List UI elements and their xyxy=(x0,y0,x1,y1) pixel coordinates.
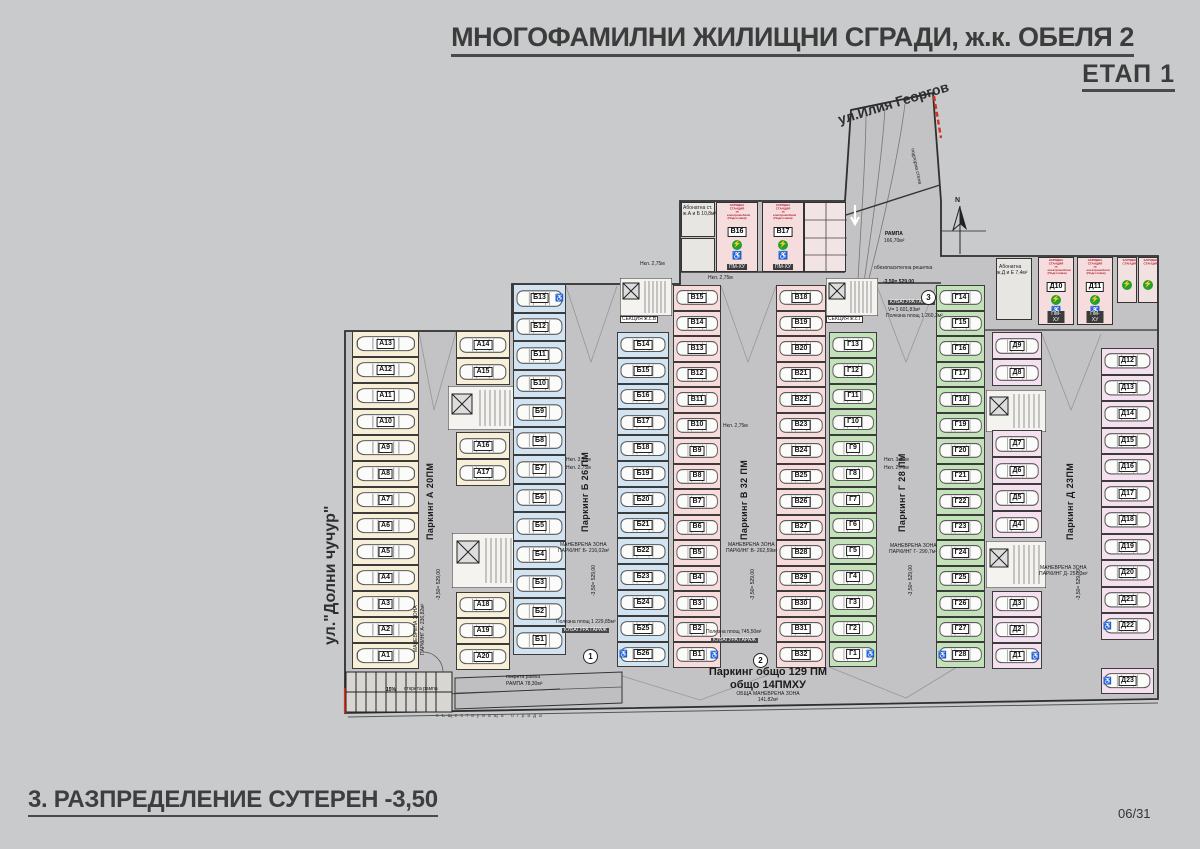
parking-stall-А10: А10 xyxy=(352,409,419,435)
plan-label: ж.А и Б 10,8м² xyxy=(683,212,716,217)
wheelchair-icon: ♿ xyxy=(1031,652,1040,660)
parking-stall-Г27: Г27 xyxy=(936,617,985,643)
section-number-bubble: 3 xyxy=(921,290,936,305)
stall-id: Д20 xyxy=(1118,568,1137,578)
stall-id: А15 xyxy=(474,367,493,377)
stall-id: В15 xyxy=(688,293,707,303)
parking-stall-Г24: Г24 xyxy=(936,540,985,566)
parking-stall-Б1: Б1 xyxy=(513,626,566,655)
drawing-title: 3. РАЗПРЕДЕЛЕНИЕ СУТЕРЕН -3,50 xyxy=(28,786,438,817)
parking-stall-Д9: Д9 xyxy=(992,332,1042,359)
stair-core xyxy=(986,390,1046,432)
parking-stall-Д15: Д15 xyxy=(1101,428,1154,455)
parking-stall-Д16: Д16 xyxy=(1101,454,1154,481)
plan-label: Нкл. 2,75м xyxy=(708,276,733,281)
accessible-space-tag: ПМ-ХУ xyxy=(773,264,793,270)
stair-core xyxy=(986,541,1046,588)
parking-stall-В4: В4 xyxy=(673,566,721,592)
stall-id: Г8 xyxy=(846,469,860,479)
sheet-number: 06/31 xyxy=(1118,806,1151,821)
stall-id: В10 xyxy=(688,420,707,430)
stall-id: В30 xyxy=(792,599,811,609)
plan-label: 15% xyxy=(386,688,396,693)
stall-id: В12 xyxy=(688,369,707,379)
total-accessible: общо 14ПМХУ xyxy=(688,679,848,692)
stall-id: В4 xyxy=(690,573,705,583)
charging-station-caption: ЗАРЯДНА СТАНЦИЯ xyxy=(1144,259,1153,266)
plan-label: открита рампа xyxy=(404,687,438,692)
stall-id: В28 xyxy=(792,548,811,558)
plan-label: ПАРКИНГ Г- 290,7м² xyxy=(889,550,937,555)
parking-stall-Г18: Г18 xyxy=(936,387,985,413)
stall-id: Б5 xyxy=(532,521,547,531)
stair-core xyxy=(620,278,672,316)
parking-stall-А18: А18 xyxy=(456,592,510,618)
stall-id: В29 xyxy=(792,573,811,583)
wheelchair-icon: ♿ xyxy=(866,650,875,658)
stall-id: Д19 xyxy=(1118,542,1137,552)
parking-stall-Д7: Д7 xyxy=(992,430,1042,457)
plan-label: СЕКЦИЯ ж.с.В xyxy=(620,316,658,323)
parking-stall-В9: В9 xyxy=(673,438,721,464)
parking-stall-В15: В15 xyxy=(673,285,721,311)
stall-id: Б17 xyxy=(634,417,653,427)
parking-stall-В19: В19 xyxy=(776,311,826,337)
accessible-space-tag: ПМ-ХУ xyxy=(1087,311,1104,323)
plan-label: -3,50= 529,00 xyxy=(909,565,914,596)
plan-label: съществуваща ограда xyxy=(436,714,545,719)
stall-id: В14 xyxy=(688,318,707,328)
parking-stall-Б12: Б12 xyxy=(513,313,566,342)
stall-id: Г6 xyxy=(846,520,860,530)
stall-id: Г15 xyxy=(952,318,970,328)
street-label-left: ул."Долни чучур" xyxy=(322,506,340,645)
parking-stall-Д8: Д8 xyxy=(992,359,1042,386)
charging-tech-room: ЗАРЯДНА СТАНЦИЯ⚡ xyxy=(1117,257,1137,303)
parking-stall-Г26: Г26 xyxy=(936,591,985,617)
stall-id: В24 xyxy=(792,446,811,456)
stall-id: Б23 xyxy=(634,572,653,582)
stall-id: А7 xyxy=(378,495,393,505)
stall-id: А14 xyxy=(474,340,493,350)
plan-label: СЕКЦИЯ ж.с.Г xyxy=(826,316,863,323)
plan-label: Паркинг А 20ПМ xyxy=(426,463,435,540)
parking-stall-В29: В29 xyxy=(776,566,826,592)
parking-stall-Б24: Б24 xyxy=(617,590,669,616)
plan-label: Полезна площ 1 229,85м² xyxy=(556,620,616,625)
stall-id: Б4 xyxy=(532,550,547,560)
stall-id: В20 xyxy=(792,344,811,354)
parking-stall-Б5: Б5 xyxy=(513,512,566,541)
parking-stall-Г5: Г5 xyxy=(829,538,877,564)
parking-stall-В12: В12 xyxy=(673,362,721,388)
parking-stall-Б15: Б15 xyxy=(617,358,669,384)
stall-id: Д1 xyxy=(1010,651,1025,661)
stall-id: А18 xyxy=(474,600,493,610)
stall-id: Б1 xyxy=(532,635,547,645)
parking-stall-Г8: Г8 xyxy=(829,461,877,487)
parking-stall-В11: В11 xyxy=(673,387,721,413)
stall-id: А20 xyxy=(474,652,493,662)
plan-label: КУБАТУРА ГАРАЖ xyxy=(711,638,758,643)
plan-label: -3,50= 529,00 xyxy=(592,565,597,596)
stall-id: Г19 xyxy=(952,420,970,430)
stall-id: Г12 xyxy=(844,366,862,376)
plan-label: Паркинг В 32 ПМ xyxy=(740,460,749,540)
parking-stall-Д1: Д1♿ xyxy=(992,643,1042,669)
wheelchair-icon: ♿ xyxy=(710,651,719,659)
stall-id: Г25 xyxy=(952,573,970,583)
parking-stall-В18: В18 xyxy=(776,285,826,311)
plan-label: -3,50= 529,00 xyxy=(751,569,756,600)
stall-id: В3 xyxy=(690,599,705,609)
stall-id: Д23 xyxy=(1118,676,1137,686)
plan-label: ПАРКИНГ В- 262,59м² xyxy=(726,549,777,554)
plan-label: Паркинг Д 23ПМ xyxy=(1066,463,1075,540)
wheelchair-icon: ♿ xyxy=(938,651,947,659)
stair-core xyxy=(826,278,878,316)
total-spaces: Паркинг общо 129 ПМ xyxy=(688,666,848,679)
stall-id: Г17 xyxy=(952,369,970,379)
plan-label: Нкл. 2,75м xyxy=(884,466,909,471)
parking-stall-Г19: Г19 xyxy=(936,413,985,439)
stall-id: Б8 xyxy=(532,436,547,446)
parking-stall-В13: В13 xyxy=(673,336,721,362)
accessible-space-tag: ПМ-ХУ xyxy=(727,264,747,270)
parking-stall-Б25: Б25 xyxy=(617,616,669,642)
stall-id: Д11 xyxy=(1086,282,1104,292)
plan-label: РАМПА xyxy=(885,232,903,237)
stall-id: Д22 xyxy=(1118,621,1137,631)
parking-stall-В21: В21 xyxy=(776,362,826,388)
stall-id: Г1 xyxy=(846,649,860,659)
parking-stall-В20: В20 xyxy=(776,336,826,362)
parking-stall-Г6: Г6 xyxy=(829,513,877,539)
parking-stall-Г11: Г11 xyxy=(829,384,877,410)
parking-stall-Г22: Г22 xyxy=(936,489,985,515)
stall-id: В21 xyxy=(792,369,811,379)
stall-id: В9 xyxy=(690,446,705,456)
wheelchair-icon: ♿ xyxy=(619,650,628,658)
wheelchair-icon: ♿ xyxy=(555,294,564,302)
ev-charger-icon: ⚡ xyxy=(1090,295,1100,305)
stall-id: В8 xyxy=(690,471,705,481)
stall-id: Г10 xyxy=(844,417,862,427)
stall-id: В19 xyxy=(792,318,811,328)
parking-stall-Б8: Б8 xyxy=(513,427,566,456)
stall-id: Б10 xyxy=(530,379,549,389)
wheelchair-icon: ♿ xyxy=(732,251,742,260)
stage-title: ЕТАП 1 xyxy=(1082,60,1175,92)
parking-stall-Д22: Д22♿ xyxy=(1101,613,1154,640)
stall-id: Д6 xyxy=(1010,466,1025,476)
stall-id: Д17 xyxy=(1118,489,1137,499)
stair-core xyxy=(448,386,522,430)
stall-id: В7 xyxy=(690,497,705,507)
parking-stall-В24: В24 xyxy=(776,438,826,464)
parking-stall-Г4: Г4 xyxy=(829,564,877,590)
stall-id: Б11 xyxy=(530,350,548,360)
stall-id: А8 xyxy=(378,469,393,479)
ev-charger-icon: ⚡ xyxy=(1143,280,1153,290)
stall-id: Г14 xyxy=(952,293,970,303)
stall-id: Г20 xyxy=(952,446,970,456)
parking-stall-Б21: Б21 xyxy=(617,513,669,539)
parking-totals: Паркинг общо 129 ПМ общо 14ПМХУ ОБЩА МАН… xyxy=(688,666,848,703)
parking-stall-А7: А7 xyxy=(352,487,419,513)
stall-id: Г4 xyxy=(846,572,860,582)
wheelchair-icon: ♿ xyxy=(778,251,788,260)
parking-stall-А5: А5 xyxy=(352,539,419,565)
wheelchair-icon: ♿ xyxy=(1103,622,1112,630)
stall-id: Б20 xyxy=(634,495,653,505)
parking-stall-Б9: Б9 xyxy=(513,398,566,427)
parking-stall-В1: В1♿ xyxy=(673,642,721,668)
stall-id: Б19 xyxy=(634,469,653,479)
parking-stall-Д2: Д2 xyxy=(992,617,1042,643)
stall-id: Б15 xyxy=(634,366,653,376)
stall-id: Г23 xyxy=(952,522,970,532)
stall-id: А4 xyxy=(378,573,393,583)
stall-id: В6 xyxy=(690,522,705,532)
parking-stall-Д17: Д17 xyxy=(1101,481,1154,508)
stall-id: Б7 xyxy=(532,464,547,474)
plan-label: покрита рампа xyxy=(506,675,540,680)
stall-id: В26 xyxy=(792,497,811,507)
stall-id: В5 xyxy=(690,548,705,558)
parking-stall-Г16: Г16 xyxy=(936,336,985,362)
stall-id: А9 xyxy=(378,443,393,453)
parking-stall-В8: В8 xyxy=(673,464,721,490)
parking-stall-В5: В5 xyxy=(673,540,721,566)
stall-id: А12 xyxy=(376,365,395,375)
parking-stall-Б18: Б18 xyxy=(617,435,669,461)
parking-stall-Б14: Б14 xyxy=(617,332,669,358)
charging-station-caption: ЗАРЯДНА СТАНЦИЯ xyxy=(1123,259,1132,266)
parking-stall-А3: А3 xyxy=(352,591,419,617)
parking-stall-Б19: Б19 xyxy=(617,461,669,487)
plan-label: РАМПА 78,30м² xyxy=(506,682,542,687)
parking-stall-Б3: Б3 xyxy=(513,569,566,598)
stall-id: Д2 xyxy=(1010,625,1025,635)
parking-stall-В10: В10 xyxy=(673,413,721,439)
stall-id: В32 xyxy=(792,650,811,660)
stall-id: А17 xyxy=(474,468,493,478)
charging-tech-room: ЗАРЯДНА СТАНЦИЯ⚡ xyxy=(1138,257,1158,303)
stall-id: А6 xyxy=(378,521,393,531)
parking-stall-А19: А19 xyxy=(456,618,510,644)
parking-stall-Б26: Б26♿ xyxy=(617,642,669,668)
stall-id: Б12 xyxy=(530,322,549,332)
parking-stall-Д21: Д21 xyxy=(1101,587,1154,614)
section-number-bubble: 1 xyxy=(583,649,598,664)
stall-id: В31 xyxy=(792,624,811,634)
utility-room xyxy=(681,238,715,272)
charging-stall-В16: ЗАРЯДНА СТАНЦИЯза електромобили(Подготов… xyxy=(716,202,758,272)
plan-label: -3,50= 529,00 xyxy=(437,569,442,600)
parking-stall-Б16: Б16 xyxy=(617,384,669,410)
parking-stall-Б13: Б13♿ xyxy=(513,284,566,313)
stall-id: В2 xyxy=(690,624,705,634)
plan-label: ПАРКИНГ Б- 216,02м² xyxy=(558,549,609,554)
stall-id: Д7 xyxy=(1010,439,1025,449)
parking-stall-В32: В32 xyxy=(776,642,826,668)
charging-stall-В17: ЗАРЯДНА СТАНЦИЯза електромобили(Подготов… xyxy=(762,202,804,272)
stall-id: А1 xyxy=(378,651,393,661)
stall-id: В16 xyxy=(728,227,747,237)
charging-station-caption: ЗАРЯДНА СТАНЦИЯза електромобили(Подготов… xyxy=(773,204,793,220)
parking-stall-В27: В27 xyxy=(776,515,826,541)
stall-id: Д13 xyxy=(1118,383,1137,393)
stall-id: А11 xyxy=(376,391,394,401)
parking-stall-А13: А13 xyxy=(352,331,419,357)
parking-stall-Б20: Б20 xyxy=(617,487,669,513)
parking-stall-Г14: Г14 xyxy=(936,285,985,311)
stall-id: Б21 xyxy=(634,520,653,530)
parking-stall-Г10: Г10 xyxy=(829,409,877,435)
parking-stall-А1: А1 xyxy=(352,643,419,669)
parking-stall-А17: А17 xyxy=(456,459,510,486)
stall-id: Г5 xyxy=(846,546,860,556)
stall-id: Г27 xyxy=(952,624,970,634)
parking-stall-А2: А2 xyxy=(352,617,419,643)
plan-label: ПАРКИНГ А- 236,82м² xyxy=(421,604,426,655)
parking-stall-А6: А6 xyxy=(352,513,419,539)
parking-stall-А15: А15 xyxy=(456,358,510,385)
parking-stall-Г28: Г28♿ xyxy=(936,642,985,668)
parking-stall-Б23: Б23 xyxy=(617,564,669,590)
drawing-sheet: МНОГОФАМИЛНИ ЖИЛИЩНИ СГРАДИ, ж.к. ОБЕЛЯ … xyxy=(0,0,1200,849)
charging-stall-Д10: ЗАРЯДНА СТАНЦИЯза електромобили(Подготов… xyxy=(1038,257,1074,325)
parking-stall-В6: В6 xyxy=(673,515,721,541)
parking-stall-А11: А11 xyxy=(352,383,419,409)
parking-stall-В23: В23 xyxy=(776,413,826,439)
parking-stall-Г13: Г13 xyxy=(829,332,877,358)
parking-stall-А20: А20 xyxy=(456,644,510,670)
plan-label: Нкл. 3,10м xyxy=(566,458,591,463)
stall-id: Б25 xyxy=(634,624,653,634)
parking-stall-Г25: Г25 xyxy=(936,566,985,592)
plan-label: Полезна площ 1 260,3м² xyxy=(886,314,943,319)
parking-stall-Г12: Г12 xyxy=(829,358,877,384)
stall-id: Г11 xyxy=(844,391,861,401)
parking-stall-А14: А14 xyxy=(456,331,510,358)
charging-station-caption: ЗАРЯДНА СТАНЦИЯза електромобили(Подготов… xyxy=(1087,259,1104,275)
stall-id: В17 xyxy=(774,227,793,237)
parking-stall-Д3: Д3 xyxy=(992,591,1042,617)
parking-stall-Г1: Г1♿ xyxy=(829,642,877,668)
parking-stall-Г15: Г15 xyxy=(936,311,985,337)
parking-stall-В26: В26 xyxy=(776,489,826,515)
plan-label: Паркинг Б 26 ПМ xyxy=(581,452,590,532)
parking-stall-В3: В3 xyxy=(673,591,721,617)
stall-id: Г28 xyxy=(952,650,970,660)
charging-station-caption: ЗАРЯДНА СТАНЦИЯза електромобили(Подготов… xyxy=(727,204,747,220)
stall-id: В1 xyxy=(690,650,705,660)
ev-charger-icon: ⚡ xyxy=(1051,295,1061,305)
plan-label: ж.Д и Е 7,4м² xyxy=(997,271,1027,276)
parking-stall-Г7: Г7 xyxy=(829,487,877,513)
parking-stall-Б11: Б11 xyxy=(513,341,566,370)
parking-stall-А16: А16 xyxy=(456,432,510,459)
stall-id: Г22 xyxy=(952,497,970,507)
stall-id: Д14 xyxy=(1118,409,1137,419)
plan-label: 166,70м² xyxy=(884,239,904,244)
stall-id: Д18 xyxy=(1118,515,1137,525)
stall-id: Д3 xyxy=(1010,599,1025,609)
stall-id: Г18 xyxy=(952,395,970,405)
total-zone-area: 141,82м² xyxy=(688,697,848,703)
stall-id: Б14 xyxy=(634,340,653,350)
parking-stall-А4: А4 xyxy=(352,565,419,591)
stall-id: Д21 xyxy=(1118,595,1137,605)
parking-stall-В22: В22 xyxy=(776,387,826,413)
stall-id: А13 xyxy=(376,339,395,349)
stall-id: В25 xyxy=(792,471,811,481)
parking-stall-Д20: Д20 xyxy=(1101,560,1154,587)
project-title: МНОГОФАМИЛНИ ЖИЛИЩНИ СГРАДИ, ж.к. ОБЕЛЯ … xyxy=(451,22,1134,57)
stall-id: Д5 xyxy=(1010,493,1025,503)
ev-charger-icon: ⚡ xyxy=(732,240,742,250)
plan-label: Нкл. 2,75м xyxy=(640,262,665,267)
stall-id: Г2 xyxy=(846,624,860,634)
plan-label: МАНЕВРЕНА ЗОНА xyxy=(414,605,419,652)
parking-stall-Г20: Г20 xyxy=(936,438,985,464)
parking-stall-Д18: Д18 xyxy=(1101,507,1154,534)
parking-stall-В31: В31 xyxy=(776,617,826,643)
parking-stall-А9: А9 xyxy=(352,435,419,461)
parking-stall-В28: В28 xyxy=(776,540,826,566)
charging-station-caption: ЗАРЯДНА СТАНЦИЯза електромобили(Подготов… xyxy=(1048,259,1065,275)
parking-stall-Б6: Б6 xyxy=(513,484,566,513)
parking-stall-Б17: Б17 xyxy=(617,409,669,435)
parking-stall-Д6: Д6 xyxy=(992,457,1042,484)
stall-id: Г7 xyxy=(846,495,860,505)
stall-id: Г26 xyxy=(952,599,970,609)
parking-stall-Г17: Г17 xyxy=(936,362,985,388)
parking-stall-Б4: Б4 xyxy=(513,541,566,570)
plan-label: Нкл. 3,10м xyxy=(884,458,909,463)
parking-stall-А8: А8 xyxy=(352,461,419,487)
parking-stall-Б10: Б10 xyxy=(513,370,566,399)
stall-id: А16 xyxy=(474,441,493,451)
stall-id: Д10 xyxy=(1047,282,1066,292)
stall-id: Д12 xyxy=(1118,356,1137,366)
parking-stall-Г9: Г9 xyxy=(829,435,877,461)
stall-id: Б24 xyxy=(634,598,653,608)
plan-label: Полезна площ 745,50м² xyxy=(706,630,761,635)
parking-stall-Г3: Г3 xyxy=(829,590,877,616)
parking-stall-Г21: Г21 xyxy=(936,464,985,490)
parking-stall-Г23: Г23 xyxy=(936,515,985,541)
plan-label: -3,50= 529,00 xyxy=(883,280,914,285)
plan-label: ПАРКИНГ Д- 257,3м² xyxy=(1039,572,1088,577)
parking-stall-В14: В14 xyxy=(673,311,721,337)
stall-id: А5 xyxy=(378,547,393,557)
plan-label: Нкл. 2,75м xyxy=(723,424,748,429)
stall-id: Г3 xyxy=(846,598,860,608)
stall-id: Б6 xyxy=(532,493,547,503)
storage-cells xyxy=(804,202,846,272)
stall-id: Г16 xyxy=(952,344,970,354)
stall-id: Д16 xyxy=(1118,462,1137,472)
stall-id: Б2 xyxy=(532,607,547,617)
stall-id: Г9 xyxy=(846,443,860,453)
stall-id: А3 xyxy=(378,599,393,609)
ev-charger-icon: ⚡ xyxy=(778,240,788,250)
stall-id: В13 xyxy=(688,344,707,354)
plan-label: Нкл. 2,75м xyxy=(566,466,591,471)
